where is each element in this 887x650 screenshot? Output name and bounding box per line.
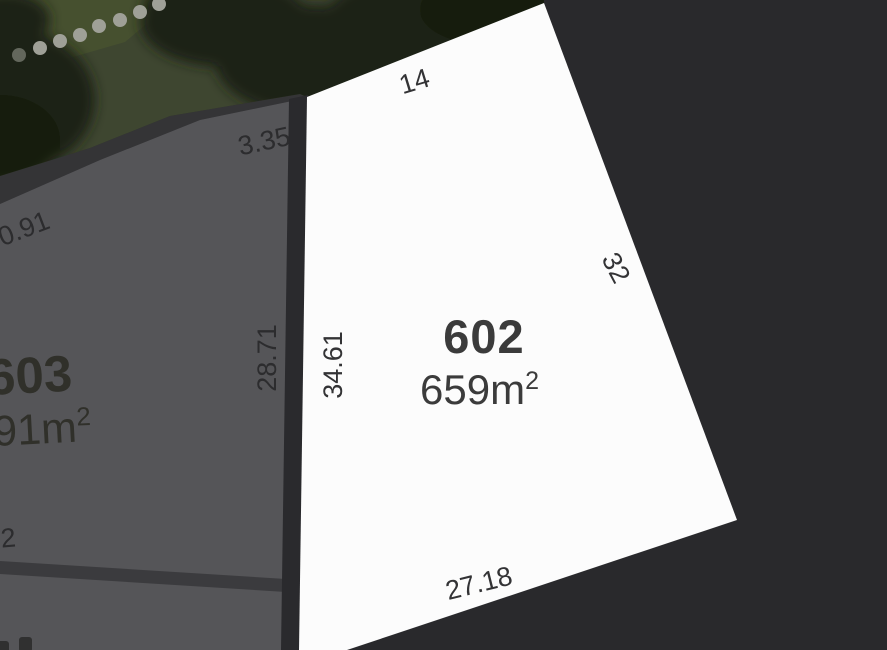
- dimension-label-left: 34.61: [318, 331, 348, 399]
- lot-602-area-value: 659m: [420, 366, 525, 413]
- lot-603-number-label: 603: [0, 345, 74, 406]
- dimension-label-603-bottom-fragment: 2: [0, 522, 17, 553]
- lot-603-area-value: 91m: [0, 404, 78, 456]
- lot-602-area-label: 659m2: [420, 366, 539, 413]
- lot-602-number-label: 602: [443, 310, 524, 363]
- lot-602-area-exponent: 2: [525, 367, 539, 395]
- dimension-label-603-right: 28.71: [252, 324, 282, 392]
- lot-map-canvas: 602 659m2 14 32 27.18 34.61 603 91m2 28.…: [0, 0, 887, 650]
- lot-map-svg: 602 659m2 14 32 27.18 34.61 603 91m2 28.…: [0, 0, 887, 650]
- lot-603-area-exponent: 2: [75, 401, 91, 432]
